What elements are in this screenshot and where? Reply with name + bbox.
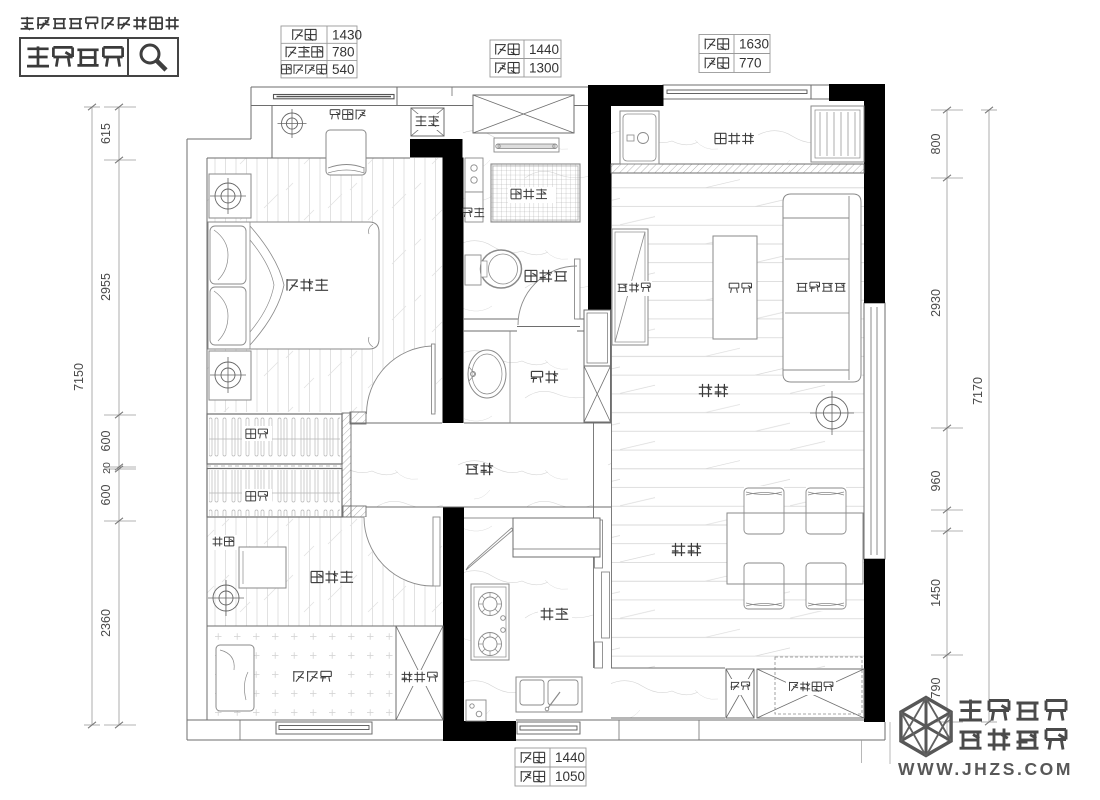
svg-text:7170: 7170 [971, 377, 985, 405]
svg-text:800: 800 [929, 134, 943, 155]
svg-text:1440: 1440 [555, 750, 585, 765]
svg-text:1630: 1630 [739, 37, 769, 52]
svg-text:1050: 1050 [555, 769, 585, 784]
svg-text:780: 780 [332, 45, 355, 60]
svg-text:615: 615 [99, 123, 113, 144]
svg-text:770: 770 [739, 56, 762, 71]
svg-text:600: 600 [99, 485, 113, 506]
svg-text:WWW.JHZS.COM: WWW.JHZS.COM [898, 759, 1073, 779]
svg-text:1450: 1450 [929, 579, 943, 607]
svg-text:790: 790 [929, 678, 943, 699]
svg-text:1440: 1440 [529, 42, 559, 57]
svg-text:540: 540 [332, 62, 355, 77]
svg-text:2955: 2955 [99, 273, 113, 301]
svg-text:600: 600 [99, 431, 113, 452]
svg-text:960: 960 [929, 471, 943, 492]
svg-text:2360: 2360 [99, 609, 113, 637]
svg-text:1430: 1430 [332, 27, 362, 42]
svg-text:20: 20 [101, 462, 113, 474]
svg-text:7150: 7150 [72, 363, 86, 391]
svg-text:2930: 2930 [929, 289, 943, 317]
svg-text:1300: 1300 [529, 60, 559, 75]
